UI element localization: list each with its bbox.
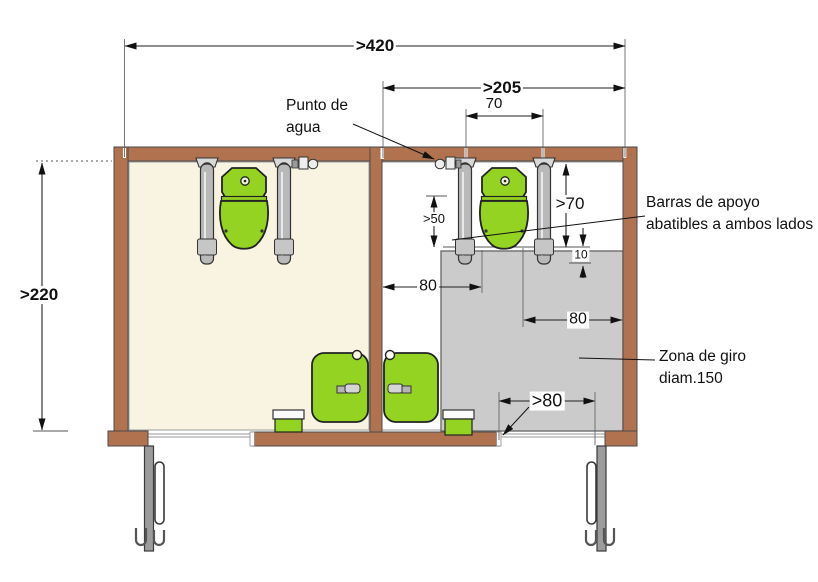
dim-total-depth: >220 (18, 286, 60, 304)
bin (273, 410, 304, 432)
bottom-left-wall-stub (108, 431, 148, 446)
dim-total-width: >420 (354, 37, 396, 55)
plan-drawing (0, 0, 818, 582)
door-handle (587, 462, 596, 524)
bottom-right-wall-stub (605, 431, 637, 446)
label-grab-bars: Barras de apoyo abatibles a ambos lados (646, 192, 814, 236)
washbasin (384, 351, 438, 423)
label-turning-zone: Zona de giro diam.150 (659, 346, 781, 390)
dim-door-width: >80 (530, 392, 565, 411)
door-left (136, 446, 164, 551)
toilet (480, 168, 528, 249)
toilet (220, 168, 268, 249)
dim-axis-to-wall: 80 (567, 312, 589, 329)
label-water-point: Punto de agua (286, 95, 362, 139)
dim-wall-to-axis: 80 (417, 279, 439, 296)
door-right (586, 446, 614, 551)
floor-plan-diagram: >420 >205 70 >220 >50 >70 10 80 80 >80 P… (0, 0, 818, 582)
dim-bar-spacing: 70 (484, 96, 505, 112)
divider-wall (370, 147, 382, 446)
dim-bar-length: >70 (554, 195, 587, 213)
right-wall (623, 147, 637, 445)
dim-front-clearance: >50 (421, 212, 447, 226)
extension-lines (125, 39, 626, 160)
washbasin (312, 351, 368, 423)
left-wall (114, 147, 128, 446)
door-handle (155, 462, 164, 524)
bin (443, 410, 474, 435)
dim-gap-10: 10 (572, 249, 589, 262)
